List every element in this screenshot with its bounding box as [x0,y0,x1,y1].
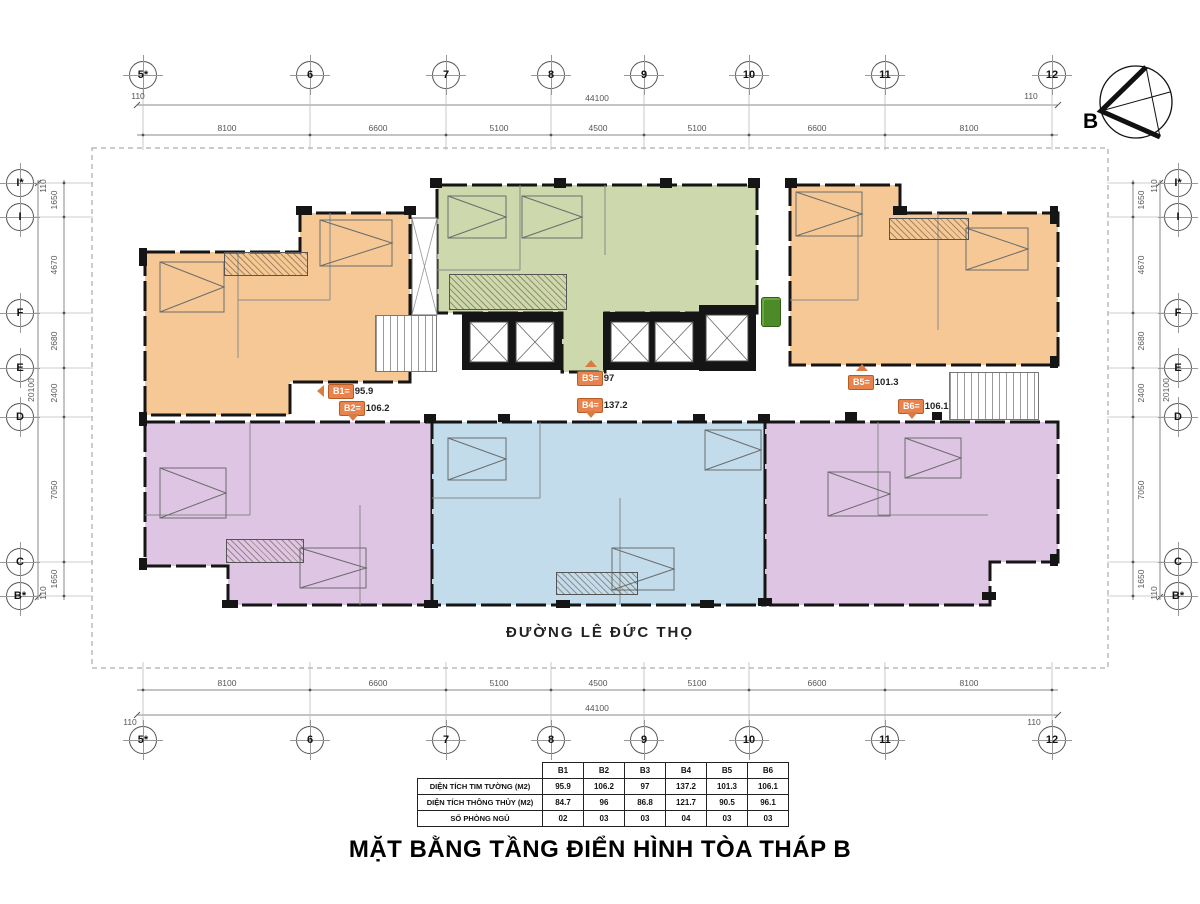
table-cell: 121.7 [666,795,707,811]
dim-label: 1650 [1136,570,1146,589]
column [660,178,672,188]
column [700,600,714,608]
table-cell: 03 [625,811,666,827]
unit-area-value: 95.9 [355,386,374,397]
table-blank-cell [418,763,543,779]
unit-area-value: 101.3 [875,377,899,388]
column [982,592,996,600]
column [693,414,705,422]
dim-label: 6600 [369,123,388,133]
grid-bubble-col: 11 [871,61,899,89]
dim-label: 8100 [960,123,979,133]
dim-label: 8100 [218,678,237,688]
grid-bubble-row: F [6,299,34,327]
table-col-header: B4 [666,763,707,779]
grid-bubble-col: 11 [871,726,899,754]
grid-bubble-col: 6 [296,726,324,754]
tag-arrow-icon [347,414,359,421]
dim-edge: 110 [1149,586,1159,600]
column [845,412,857,421]
grid-bubble-row: D [1164,403,1192,431]
table-col-header: B3 [625,763,666,779]
grid-bubble-row: I [1164,203,1192,231]
grid-bubble-row: F [1164,299,1192,327]
table-cell: 96.1 [748,795,789,811]
balcony-hatch [227,540,303,562]
dim-label: 1650 [49,570,59,589]
dim-overall: 44100 [585,93,609,103]
dim-label: 2680 [49,332,59,351]
grid-bubble-col: 7 [432,61,460,89]
grid-bubble-col: 5* [129,726,157,754]
balcony-hatch [225,253,307,275]
unit-area-value: 137.2 [604,400,628,411]
column [893,206,907,215]
column [296,206,312,215]
column [404,206,416,215]
plant-icon [761,297,781,327]
unit-b6-shape [765,422,1058,605]
unit-tag-b4: B4=137.2 [577,398,628,413]
unit-tag-b6: B6=106.1 [898,399,949,414]
grid-bubble-row: B* [1164,582,1192,610]
table-cell: 86.8 [625,795,666,811]
table-cell: 02 [543,811,584,827]
table-row-label: DIỆN TÍCH THÔNG THỦY (M2) [418,795,543,811]
table-row-label: SỐ PHÒNG NGỦ [418,811,543,827]
column [139,558,147,570]
tag-arrow-icon [906,412,918,419]
grid-bubble-col: 7 [432,726,460,754]
unit-b2-shape [145,422,432,605]
unit-tag-b3: B3=97 [577,371,614,386]
dim-label: 1650 [49,191,59,210]
table-col-header: B5 [707,763,748,779]
table-row-label: DIỆN TÍCH TIM TƯỜNG (M2) [418,779,543,795]
column [758,414,770,423]
dim-overall: 44100 [585,703,609,713]
stairwell-left [376,316,436,371]
table-cell: 04 [666,811,707,827]
dim-label: 8100 [960,678,979,688]
grid-bubble-row: I* [1164,169,1192,197]
tag-arrow-icon [585,360,597,367]
dim-label: 4670 [49,256,59,275]
grid-bubble-row: D [6,403,34,431]
column [430,178,442,188]
unit-id-chip: B5= [848,375,874,390]
grid-bubble-row: I* [6,169,34,197]
dim-edge: 110 [123,717,137,727]
table-cell: 03 [584,811,625,827]
column [424,600,438,608]
dim-label: 7050 [49,481,59,500]
table-cell: 90.5 [707,795,748,811]
table-cell: 106.1 [748,779,789,795]
dim-label: 5100 [490,678,509,688]
column [748,178,760,188]
tag-arrow-icon [585,411,597,418]
grid-bubble-col: 8 [537,726,565,754]
dim-label: 1650 [1136,191,1146,210]
unit-b5-shape [790,185,1058,365]
dim-edge: 110 [38,586,48,600]
north-label: B [1083,110,1098,134]
dim-edge: 110 [1149,179,1159,193]
table-cell: 03 [748,811,789,827]
table-cell: 96 [584,795,625,811]
street-label: ĐƯỜNG LÊ ĐỨC THỌ [0,624,1200,641]
grid-bubble-col: 6 [296,61,324,89]
column [556,600,570,608]
area-table: B1B2B3B4B5B6DIỆN TÍCH TIM TƯỜNG (M2)95.9… [417,762,789,827]
grid-bubble-row: B* [6,582,34,610]
dim-edge: 110 [1024,91,1038,101]
column [222,600,238,608]
column [139,412,147,426]
dim-label: 5100 [688,123,707,133]
column [424,414,436,423]
table-cell: 137.2 [666,779,707,795]
dim-overall: 20100 [26,378,36,402]
north-compass-icon [1100,66,1172,138]
unit-tag-b2: B2=106.2 [339,401,390,416]
dim-label: 5100 [490,123,509,133]
dim-label: 4500 [589,678,608,688]
dim-label: 4500 [589,123,608,133]
bathroom-hatch [450,275,566,309]
grid-bubble-col: 12 [1038,726,1066,754]
unit-id-chip: B3= [577,371,603,386]
table-col-header: B2 [584,763,625,779]
grid-bubble-col: 9 [630,726,658,754]
dim-label: 4670 [1136,256,1146,275]
dim-label: 6600 [808,678,827,688]
unit-area-value: 106.1 [925,401,949,412]
dim-label: 8100 [218,123,237,133]
unit-area-value: 106.2 [366,403,390,414]
column [758,598,772,606]
dim-edge: 110 [38,179,48,193]
dim-edge: 110 [131,91,145,101]
dim-label: 2400 [1136,384,1146,403]
dim-label: 7050 [1136,481,1146,500]
grid-bubble-row: C [1164,548,1192,576]
dim-overall: 20100 [1161,378,1171,402]
dim-label: 6600 [369,678,388,688]
column [1050,356,1058,368]
dim-label: 2680 [1136,332,1146,351]
tag-arrow-icon [317,385,324,397]
grid-bubble-col: 8 [537,61,565,89]
table-col-header: B6 [748,763,789,779]
unit-area-value: 97 [604,373,615,384]
table-col-header: B1 [543,763,584,779]
table-cell: 84.7 [543,795,584,811]
table-cell: 97 [625,779,666,795]
table-cell: 106.2 [584,779,625,795]
stairwell-right [950,373,1038,419]
column [498,414,510,422]
dim-label: 5100 [688,678,707,688]
grid-bubble-row: C [6,548,34,576]
dim-label: 6600 [808,123,827,133]
unit-id-chip: B1= [328,384,354,399]
grid-bubble-col: 9 [630,61,658,89]
table-cell: 101.3 [707,779,748,795]
grid-bubble-col: 5* [129,61,157,89]
balcony-hatch [890,219,968,239]
grid-bubble-col: 10 [735,61,763,89]
page-title: MẶT BẰNG TẦNG ĐIỂN HÌNH TÒA THÁP B [0,836,1200,864]
dim-edge: 110 [1027,717,1041,727]
column [1050,554,1058,566]
tag-arrow-icon [856,364,868,371]
table-cell: 95.9 [543,779,584,795]
column [1050,206,1058,224]
column [139,248,147,266]
unit-tag-b1: B1=95.9 [328,384,373,399]
dim-label: 2400 [49,384,59,403]
unit-tag-b5: B5=101.3 [848,375,899,390]
column [785,178,797,188]
balcony-hatch [557,573,637,594]
grid-bubble-col: 12 [1038,61,1066,89]
column [554,178,566,188]
floorplan-canvas: ĐƯỜNG LÊ ĐỨC THỌ MẶT BẰNG TẦNG ĐIỂN HÌNH… [0,0,1200,904]
table-cell: 03 [707,811,748,827]
grid-bubble-col: 10 [735,726,763,754]
grid-bubble-row: I [6,203,34,231]
